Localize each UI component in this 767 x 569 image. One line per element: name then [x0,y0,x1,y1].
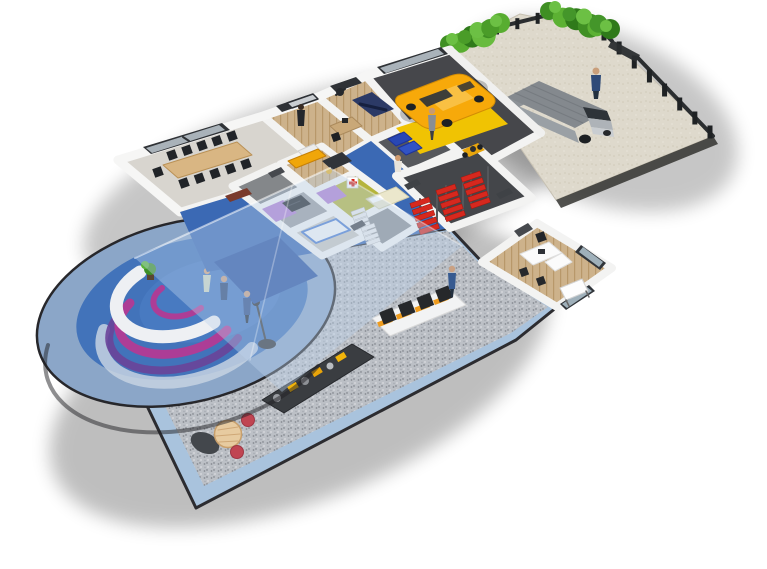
terrace-person-head [449,266,455,272]
changing-person-head [395,155,401,161]
hedge-ne-corner-top [600,20,612,32]
garage-person-head [429,108,435,114]
gate-person-body [591,75,601,91]
fence-ne-posts [708,126,713,139]
office-monitor [342,118,348,123]
scene-canvas [0,0,767,569]
gate-person-head [593,68,600,75]
hedge-ne-corner-top [563,7,577,21]
hedge-north-top [490,15,502,27]
hedge-north-top [458,30,472,44]
terrace-person-body [448,273,456,289]
hedge-north-top [446,33,458,45]
office-person-body [297,110,305,126]
scooter-seat [470,146,476,152]
hedge-ne-corner-top [576,9,592,25]
car-wheel-3 [474,96,484,103]
fence-ne-posts [662,84,667,97]
van-wheel-far [603,130,611,136]
car-wheel-2 [442,119,453,127]
fence-n-posts [515,18,519,29]
display-rock-3 [327,363,334,370]
scooter-wheel-2 [477,144,483,150]
car-wheel-1 [406,104,416,111]
fence-ne-posts [677,98,682,111]
floorplan-illustration [0,0,767,569]
scooter-wheel-1 [462,152,468,158]
van-wheel-front [579,135,591,144]
hedge-ne-corner-top [549,1,561,13]
lounge-stool-2 [231,446,244,459]
fence-ne-posts [647,70,652,83]
office-person-head [298,104,304,110]
changing-person-towel [394,161,402,172]
gate-person-legs [593,91,599,99]
sales-laptop [538,249,545,254]
fence-n-posts [536,13,540,24]
fence-ne-posts [692,112,697,125]
garage-person-body [428,115,436,131]
